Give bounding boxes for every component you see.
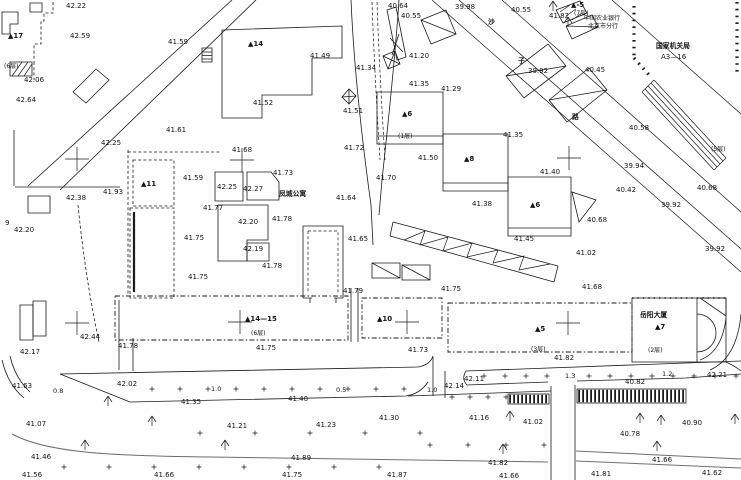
elevation-label: 41.70 — [376, 174, 396, 182]
point-marks — [62, 465, 382, 470]
elevation-label: 41.20 — [409, 52, 429, 60]
elevation-label: 41.79 — [343, 287, 363, 295]
elevation-label: 41.93 — [103, 188, 123, 196]
elevation-label: 41.56 — [22, 471, 43, 479]
building-label: ▲10 — [377, 315, 392, 323]
elevation-label: 41.07 — [26, 420, 46, 428]
map-labels: 42.2242.5941.59▲17(6层)42.0642.6442.2541.… — [4, 1, 727, 480]
elevation-label: 42.19 — [243, 245, 263, 253]
elevation-label: 41.78 — [118, 342, 138, 350]
elevation-label: 41.35 — [181, 398, 201, 406]
elevation-label: 41.16 — [469, 414, 490, 422]
elevation-label: (5层) — [711, 146, 726, 153]
elevation-label: 41.82 — [549, 12, 569, 20]
elevation-label: 1.0 — [211, 385, 221, 393]
elevation-label: 41.75 — [441, 285, 461, 293]
tree-icon — [104, 396, 112, 406]
elevation-label: 0.5 — [336, 386, 346, 394]
elevation-label: 41.89 — [291, 454, 311, 462]
elevation-label: 39.92 — [705, 245, 725, 253]
elevation-label: 0.8 — [53, 387, 63, 395]
survey-cross-icon — [557, 146, 581, 170]
building-label: ▲5 — [535, 325, 545, 333]
elevation-label: 41.02 — [523, 418, 543, 426]
elevation-label: 40.55 — [511, 6, 531, 14]
elevation-label: 41.29 — [441, 85, 461, 93]
south-buildings — [115, 288, 632, 352]
elevation-label: 41.40 — [288, 395, 308, 403]
survey-cross-icon — [65, 147, 89, 171]
elevation-label: 41.81 — [591, 470, 611, 478]
tree-icon — [657, 415, 665, 425]
building-7-outline — [632, 298, 741, 371]
elevation-label: 42.44 — [80, 333, 101, 341]
elevation-label: 39.92 — [661, 201, 681, 209]
elevation-label: 41.35 — [409, 80, 429, 88]
elevation-label: 40.55 — [401, 12, 421, 20]
elevation-label: 41.87 — [387, 471, 407, 479]
map-symbols — [62, 1, 740, 470]
elevation-label: 41.52 — [253, 99, 273, 107]
elevation-label: 39.92 — [528, 67, 548, 75]
elevation-label: 42.17 — [20, 348, 40, 356]
elevation-label: 42.59 — [70, 32, 90, 40]
elevation-label: 40.78 — [620, 430, 640, 438]
elevation-label: 北京市分行 — [588, 22, 618, 30]
elevation-label: 42.11 — [464, 375, 484, 383]
elevation-label: 41.62 — [702, 469, 722, 477]
tree-icon — [549, 1, 557, 11]
name-label: 路 — [572, 112, 579, 121]
elevation-label: 41.68 — [582, 283, 602, 291]
elevation-label: 42.22 — [66, 2, 86, 10]
elevation-label: 41.77 — [203, 204, 223, 212]
tree-icon — [731, 414, 739, 424]
building-label: ▲14 — [248, 40, 263, 48]
elevation-label: 41.75 — [184, 234, 204, 242]
building-label: ▲6 — [530, 201, 540, 209]
elevation-label: 39.98 — [455, 3, 475, 11]
map-canvas: 42.2242.5941.59▲17(6层)42.0642.6442.2541.… — [0, 0, 741, 480]
name-label: 岳阳大厦 — [640, 310, 667, 319]
building-label: ▲14—15 — [245, 315, 277, 323]
building-label: ▲7 — [655, 323, 665, 331]
elevation-label: 1.2 — [662, 370, 672, 378]
elevation-label: 42.14 — [444, 382, 465, 390]
name-label: 沙 — [488, 18, 495, 26]
crosswalk — [508, 394, 549, 404]
elevation-label: 40.58 — [629, 124, 649, 132]
elevation-label: 9 — [5, 219, 9, 227]
tree-icon — [653, 441, 661, 451]
name-label: 凤城公寓 — [279, 189, 306, 198]
hatched-walkway — [642, 80, 726, 170]
elevation-label: 41.30 — [379, 414, 399, 422]
building-label: ▲-5 — [571, 1, 584, 9]
elevation-label: 42.21 — [707, 371, 727, 379]
elevation-label: 41.49 — [310, 52, 330, 60]
elevation-label: 41.50 — [418, 154, 438, 162]
elevation-label: 42.02 — [117, 380, 137, 388]
survey-cross-icon — [395, 310, 419, 334]
elevation-label: 41.35 — [503, 131, 523, 139]
elevation-label: 41.61 — [166, 126, 186, 134]
crosswalk — [577, 389, 686, 403]
point-marks — [198, 431, 423, 436]
elevation-label: 41.59 — [183, 174, 203, 182]
elevation-label: 42.25 — [101, 139, 121, 147]
elevation-label: 41.64 — [336, 194, 357, 202]
building-label: ▲11 — [141, 180, 156, 188]
elevation-label: 41.66 — [154, 471, 175, 479]
survey-cross-icon — [65, 311, 89, 335]
point-marks — [428, 443, 547, 448]
elevation-label: 42.20 — [238, 218, 258, 226]
elevation-label: (6层) — [251, 330, 266, 337]
name-label: 子 — [518, 57, 525, 65]
elevation-label: 41.82 — [554, 354, 574, 362]
elevation-label: (1层) — [398, 133, 413, 140]
stairs-icon — [202, 48, 212, 62]
tree-icon — [221, 440, 229, 450]
elevation-label: 41.73 — [273, 169, 293, 177]
elevation-label: 41.21 — [227, 422, 247, 430]
elevation-label: (2层) — [648, 347, 663, 354]
elevation-label: 41.40 — [540, 168, 560, 176]
elevation-label: 41.75 — [188, 273, 208, 281]
elevation-label: 41.63 — [12, 382, 32, 390]
elevation-label: 41.75 — [256, 344, 276, 352]
building-label: ▲8 — [464, 155, 474, 163]
elevation-label: 40.68 — [697, 184, 717, 192]
point-marks — [450, 395, 509, 400]
elevation-label: 41.38 — [472, 200, 492, 208]
building-label: ▲6 — [402, 110, 412, 118]
tree-icon — [506, 411, 514, 421]
elevation-label: 41.45 — [514, 235, 534, 243]
sawtooth-band — [372, 222, 558, 282]
elevation-label: 41.59 — [168, 38, 188, 46]
central-road — [342, 0, 456, 245]
elevation-label: 40.68 — [587, 216, 607, 224]
building-label: ▲17 — [8, 32, 23, 40]
elevation-label: 41.65 — [348, 235, 368, 243]
tree-icon — [636, 413, 644, 423]
elevation-label: 42.64 — [16, 96, 37, 104]
elevation-label: 42.20 — [14, 226, 34, 234]
survey-map: 42.2242.5941.59▲17(6层)42.0642.6442.2541.… — [0, 0, 741, 480]
survey-cross-icon — [556, 311, 580, 335]
elevation-label: 40.64 — [388, 2, 409, 10]
elevation-label: 41.78 — [262, 262, 282, 270]
elevation-label: 41.73 — [408, 346, 428, 354]
elevation-label: 41.23 — [316, 421, 336, 429]
elevation-label: 40.45 — [585, 66, 605, 74]
topleft-parcels — [14, 0, 256, 213]
elevation-label: 40.82 — [625, 378, 645, 386]
elevation-label: 41.75 — [282, 471, 302, 479]
elevation-label: 39.94 — [624, 162, 645, 170]
elevation-label: (3层) — [531, 346, 546, 353]
diagonal-street-lines — [432, 0, 741, 272]
elevation-label: (6层) — [4, 63, 19, 70]
point-marks — [482, 374, 550, 379]
elevation-label: 42.25 — [217, 183, 237, 191]
elevation-label: 41.68 — [232, 146, 252, 154]
elevation-label: 41.34 — [356, 64, 377, 72]
elevation-label: 42.06 — [24, 76, 45, 84]
tree-icon — [148, 416, 156, 426]
elevation-label: 41.51 — [343, 107, 363, 115]
elevation-label: 41.72 — [344, 144, 364, 152]
u-building-outline — [303, 226, 343, 303]
elevation-label: 中国农业银行 — [584, 14, 620, 22]
elevation-label: A3—16 — [661, 53, 687, 61]
point-marks — [150, 387, 407, 392]
elevation-label: 42.27 — [243, 185, 263, 193]
elevation-label: 40.90 — [682, 419, 702, 427]
elevation-label: 41.46 — [31, 453, 52, 461]
elevation-label: 41.02 — [576, 249, 596, 257]
elevation-label: 1.0 — [427, 386, 437, 394]
elevation-label: 1.3 — [565, 372, 575, 380]
elevation-label: 41.66 — [499, 472, 520, 480]
elevation-label: 41.78 — [272, 215, 292, 223]
elevation-label: 42.38 — [66, 194, 86, 202]
elevation-label: 41.82 — [488, 459, 508, 467]
elevation-label: 40.42 — [616, 186, 636, 194]
elevation-label: 41.66 — [652, 456, 673, 464]
tree-icon — [81, 440, 89, 450]
name-label: 国家机关局 — [656, 41, 690, 50]
